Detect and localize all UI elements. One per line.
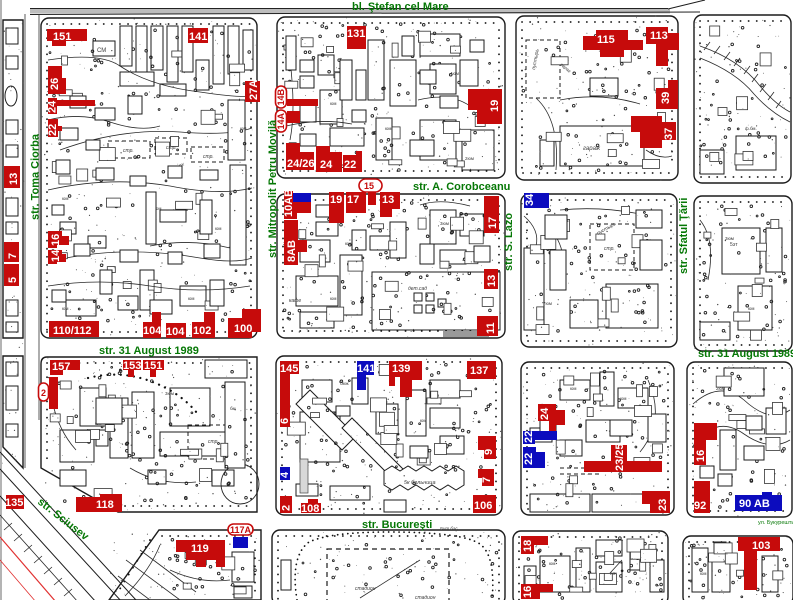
svg-text:стр.: стр. (604, 246, 615, 252)
svg-text:16: 16 (522, 586, 534, 598)
svg-text:юм: юм (240, 126, 246, 131)
svg-text:151: 151 (53, 31, 71, 43)
svg-text:23/25: 23/25 (614, 443, 626, 471)
svg-text:СМ: СМ (97, 48, 106, 54)
svg-text:141: 141 (357, 363, 375, 375)
svg-text:3юм: 3юм (165, 391, 174, 396)
svg-text:юм: юм (570, 386, 576, 391)
svg-text:ул. Букурешть: ул. Букурешть (758, 520, 793, 526)
svg-text:119: 119 (191, 543, 209, 555)
svg-text:92: 92 (694, 500, 706, 512)
svg-text:37: 37 (663, 128, 675, 140)
svg-text:str. Mitropolit Petru Movilă: str. Mitropolit Petru Movilă (267, 119, 279, 258)
svg-text:юм: юм (620, 396, 626, 401)
svg-text:102: 102 (193, 325, 211, 337)
svg-text:str. S. Lazo: str. S. Lazo (503, 213, 515, 271)
svg-text:юм: юм (188, 296, 194, 301)
svg-text:бм: бм (230, 406, 236, 411)
svg-text:19: 19 (489, 100, 501, 112)
svg-text:22: 22 (523, 453, 535, 465)
svg-text:34: 34 (524, 193, 536, 206)
svg-text:6: 6 (279, 418, 291, 424)
svg-text:14: 14 (50, 249, 62, 262)
svg-text:стр.: стр. (123, 148, 134, 154)
svg-text:106: 106 (474, 500, 492, 512)
svg-text:str. 31 August 1989: str. 31 August 1989 (99, 345, 199, 357)
svg-text:26: 26 (49, 78, 61, 90)
svg-text:7: 7 (7, 253, 19, 259)
svg-text:юм: юм (330, 296, 336, 301)
svg-text:ф.бм.: ф.бм. (745, 126, 757, 131)
svg-text:дет.сад: дет.сад (408, 286, 427, 292)
svg-text:24: 24 (320, 159, 333, 171)
svg-text:24/26: 24/26 (287, 158, 315, 170)
svg-text:str. Sfatul Ţării: str. Sfatul Ţării (678, 198, 690, 274)
svg-text:юм: юм (215, 226, 221, 231)
svg-text:39: 39 (660, 92, 672, 104)
svg-text:115: 115 (597, 34, 615, 46)
svg-text:19: 19 (330, 194, 342, 206)
svg-text:13: 13 (486, 275, 498, 287)
svg-text:104: 104 (143, 325, 162, 337)
svg-text:бмж: бмж (340, 381, 349, 386)
svg-text:КЖ: КЖ (610, 571, 618, 576)
svg-text:100: 100 (234, 323, 252, 335)
svg-text:17: 17 (347, 194, 359, 206)
svg-text:151: 151 (144, 360, 162, 372)
svg-text:юм: юм (62, 306, 68, 311)
svg-text:139: 139 (392, 363, 410, 375)
svg-text:11: 11 (485, 322, 497, 334)
svg-text:27A: 27A (248, 80, 260, 100)
svg-text:гараж: гараж (583, 146, 601, 152)
svg-text:108: 108 (301, 503, 319, 515)
svg-text:юм: юм (420, 418, 426, 423)
svg-text:22: 22 (523, 431, 535, 443)
svg-text:5к больница: 5к больница (404, 480, 436, 486)
svg-text:str. A. Corobceanu: str. A. Corobceanu (413, 181, 510, 193)
svg-text:стадион: стадион (355, 586, 376, 592)
svg-text:2юм: 2юм (465, 156, 474, 161)
svg-text:18: 18 (522, 540, 534, 552)
svg-text:юм: юм (700, 571, 706, 576)
svg-text:118: 118 (96, 499, 114, 511)
svg-text:137: 137 (470, 365, 488, 377)
svg-text:22: 22 (47, 124, 59, 136)
svg-text:Бит.бас: Бит.бас (440, 526, 458, 531)
svg-text:13: 13 (382, 194, 394, 206)
svg-text:4: 4 (279, 471, 291, 478)
svg-text:5эт: 5эт (730, 242, 738, 248)
svg-text:юм: юм (748, 306, 754, 311)
svg-text:22: 22 (344, 159, 356, 171)
svg-text:24: 24 (47, 100, 59, 113)
svg-text:стр.: стр. (166, 145, 177, 151)
svg-text:110/112: 110/112 (53, 325, 92, 337)
svg-text:2: 2 (281, 505, 293, 511)
svg-text:кафе: кафе (289, 298, 301, 304)
svg-text:16: 16 (50, 234, 62, 246)
svg-text:юм: юм (330, 101, 336, 106)
svg-text:юм: юм (385, 126, 391, 131)
svg-text:131: 131 (347, 28, 365, 40)
svg-text:104: 104 (166, 326, 185, 338)
svg-text:117A: 117A (230, 525, 252, 535)
svg-text:135: 135 (5, 497, 23, 509)
svg-text:7: 7 (481, 477, 493, 483)
svg-text:5: 5 (7, 277, 19, 283)
svg-text:юм: юм (62, 196, 68, 201)
svg-text:157: 157 (52, 361, 70, 373)
svg-text:16: 16 (695, 450, 707, 462)
svg-text:141: 141 (189, 31, 207, 43)
svg-text:str. 31 August 1989: str. 31 August 1989 (698, 348, 793, 360)
svg-text:юм: юм (345, 241, 351, 246)
svg-text:153: 153 (123, 360, 141, 372)
svg-text:bl. Ştefan cel Mare: bl. Ştefan cel Mare (352, 1, 449, 13)
svg-text:str. Toma Ciorba: str. Toma Ciorba (30, 133, 42, 220)
svg-text:24: 24 (539, 407, 551, 420)
svg-text:3юм: 3юм (440, 221, 449, 226)
svg-text:2юм: 2юм (716, 386, 725, 391)
svg-text:10AB: 10AB (283, 189, 295, 217)
svg-text:стадион: стадион (415, 595, 436, 600)
svg-text:юм: юм (549, 561, 555, 566)
svg-text:15: 15 (364, 181, 374, 191)
svg-text:113: 113 (650, 30, 668, 42)
svg-text:13: 13 (8, 173, 20, 185)
svg-text:str. Bucureşti: str. Bucureşti (362, 519, 432, 531)
svg-text:23: 23 (657, 499, 669, 511)
svg-text:9: 9 (483, 449, 495, 455)
svg-text:стр.: стр. (203, 154, 214, 160)
svg-text:4юм: 4юм (450, 71, 459, 76)
svg-text:7юм: 7юм (543, 301, 552, 306)
svg-text:17: 17 (487, 217, 499, 229)
svg-text:14B: 14B (276, 88, 286, 105)
svg-text:103: 103 (752, 540, 770, 552)
svg-text:стр.: стр. (208, 439, 219, 445)
svg-text:2: 2 (41, 388, 46, 398)
svg-text:90 AB: 90 AB (739, 498, 770, 510)
svg-text:145: 145 (280, 363, 298, 375)
svg-text:8AB: 8AB (286, 240, 298, 262)
svg-text:3юм: 3юм (725, 236, 734, 241)
